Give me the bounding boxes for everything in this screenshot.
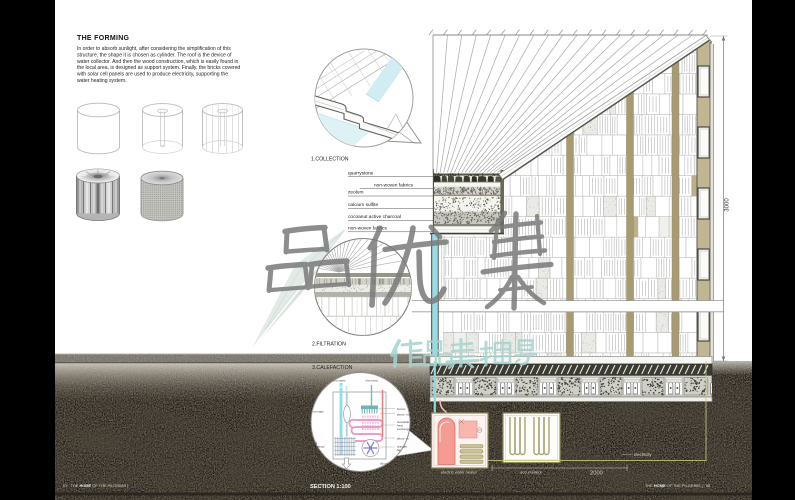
svg-text:2.FILTRATION: 2.FILTRATION [312, 342, 346, 348]
svg-text:burner: burner [397, 407, 406, 411]
svg-text:water collector. And then the: water collector. And then the wood const… [77, 59, 239, 65]
svg-text:electric water heater: electric water heater [441, 470, 478, 475]
svg-text:cocoanut active charcoal: cocoanut active charcoal [348, 214, 401, 220]
svg-text:SECTION 1:100: SECTION 1:100 [310, 484, 351, 490]
svg-text:average: average [313, 410, 324, 414]
svg-text:THE FORMING: THE FORMING [77, 35, 130, 42]
svg-text:structure, the shape it is cho: structure, the shape it is chosen as cyl… [77, 53, 232, 59]
svg-text:1.COLLECTION: 1.COLLECTION [311, 157, 349, 163]
svg-text:quarrystone: quarrystone [348, 171, 374, 177]
svg-text:water heating system.: water heating system. [77, 78, 127, 84]
svg-text:about +x: about +x [397, 437, 409, 441]
svg-text:about +xx: about +xx [397, 413, 411, 417]
svg-text:3000: 3000 [725, 198, 731, 212]
svg-text:07 THE HOME OF THE PILGRIMS: 07 THE HOME OF THE PILGRIMS | [63, 483, 128, 488]
svg-text:3.CALEFACTION: 3.CALEFACTION [312, 365, 353, 371]
svg-text:zeolum: zeolum [348, 190, 363, 196]
svg-text:electricity: electricity [634, 452, 652, 457]
svg-text:calcium sulfite: calcium sulfite [348, 202, 378, 208]
svg-text:exchanger: exchanger [397, 427, 411, 431]
svg-text:with solar cell panels are use: with solar cell panels are used to produ… [77, 72, 228, 78]
svg-text:THE HOME OF THE PILGRIMS | 0: THE HOME OF THE PILGRIMS | 08 [645, 483, 710, 488]
svg-text:fan: fan [397, 448, 402, 452]
svg-text:accumulator: accumulator [520, 470, 542, 475]
svg-text:electricity: electricity [366, 379, 379, 383]
svg-text:the local area, is designed as: the local area, is designed as support s… [77, 65, 240, 71]
svg-text:In order to absorb sunlight, a: In order to absorb sunlight, after consi… [77, 46, 231, 52]
svg-text:non-woven fabrics: non-woven fabrics [374, 183, 414, 189]
svg-text:2000: 2000 [590, 471, 603, 477]
